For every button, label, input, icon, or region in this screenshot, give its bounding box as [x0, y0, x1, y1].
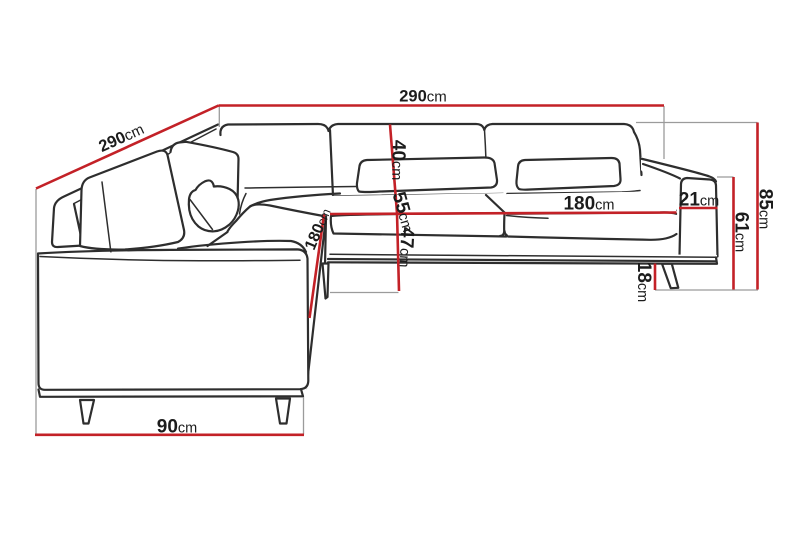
- svg-text:21cm: 21cm: [679, 190, 719, 211]
- svg-text:180cm: 180cm: [563, 194, 614, 215]
- svg-text:18cm: 18cm: [633, 262, 654, 302]
- svg-text:290cm: 290cm: [399, 88, 447, 106]
- svg-text:90cm: 90cm: [157, 417, 197, 438]
- svg-text:61cm: 61cm: [731, 212, 752, 252]
- svg-text:85cm: 85cm: [755, 189, 776, 229]
